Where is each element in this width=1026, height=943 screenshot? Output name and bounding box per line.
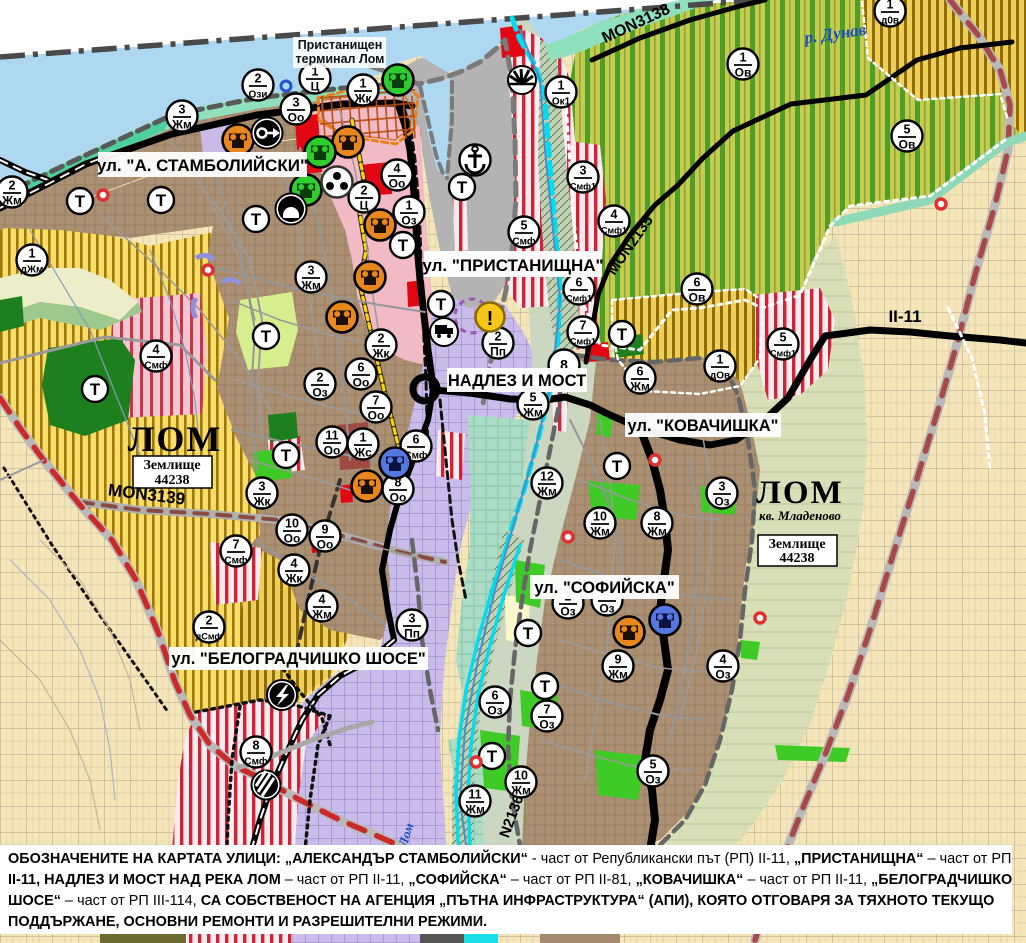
svg-text:Оо: Оо (288, 111, 305, 125)
svg-text:9: 9 (615, 653, 622, 667)
svg-text:Т: Т (617, 325, 628, 344)
svg-text:Жк: Жк (285, 572, 304, 586)
svg-text:Жм: Жм (629, 380, 650, 394)
svg-text:4: 4 (720, 653, 727, 667)
svg-text:7: 7 (233, 538, 240, 552)
svg-text:д0в: д0в (881, 16, 899, 27)
svg-text:Т: Т (281, 446, 292, 465)
svg-text:Жм: Жм (607, 668, 628, 682)
svg-text:1: 1 (887, 0, 894, 12)
svg-text:Оз: Оз (539, 718, 554, 732)
svg-text:Жс: Жс (353, 446, 372, 460)
svg-text:7: 7 (544, 703, 551, 717)
svg-text:Оо: Оо (353, 376, 370, 390)
svg-text:ЛОМ: ЛОМ (128, 419, 223, 459)
svg-text:Оз: Оз (715, 668, 730, 682)
svg-text:1: 1 (360, 431, 367, 445)
svg-text:5: 5 (904, 123, 911, 137)
svg-text:Т: Т (540, 677, 551, 696)
svg-text:Жм: Жм (589, 525, 610, 539)
svg-text:10: 10 (285, 517, 299, 531)
svg-text:Смф: Смф (224, 555, 247, 567)
svg-text:ул. "КОВАЧИШКА": ул. "КОВАЧИШКА" (628, 417, 779, 435)
svg-text:12: 12 (540, 470, 554, 484)
svg-text:Оз: Оз (645, 773, 660, 787)
svg-text:44238: 44238 (780, 551, 815, 566)
svg-text:3: 3 (409, 612, 416, 626)
svg-text:7: 7 (580, 319, 587, 333)
svg-text:дОв: дОв (710, 371, 730, 382)
svg-text:2: 2 (378, 332, 385, 346)
svg-text:Оо: Оо (324, 444, 341, 458)
svg-text:кв. Младеново: кв. Младеново (759, 508, 841, 523)
svg-text:Ов: Ов (689, 291, 706, 305)
svg-text:Жм: Жм (464, 803, 485, 817)
svg-text:4: 4 (611, 208, 618, 222)
svg-text:Т: Т (436, 295, 447, 314)
svg-text:Оз: Оз (599, 602, 614, 616)
svg-text:Смф: Смф (244, 756, 267, 768)
svg-text:4: 4 (319, 593, 326, 607)
svg-text:7: 7 (373, 394, 380, 408)
svg-text:Землище: Землище (768, 537, 825, 552)
svg-text:9: 9 (322, 523, 329, 537)
svg-text:Смф1: Смф1 (566, 294, 592, 304)
svg-text:2: 2 (361, 184, 368, 198)
svg-text:!: ! (487, 308, 494, 330)
svg-text:10: 10 (514, 769, 528, 783)
svg-text:Т: Т (75, 192, 86, 211)
svg-text:Оз: Оз (560, 605, 575, 619)
svg-text:Оз: Оз (487, 704, 502, 718)
svg-text:ЛОМ: ЛОМ (756, 475, 843, 511)
svg-text:Смф: Смф (144, 360, 167, 372)
svg-text:Т: Т (90, 380, 101, 399)
svg-text:8: 8 (654, 510, 661, 524)
svg-text:Оо: Оо (368, 409, 385, 423)
svg-text:Т: Т (457, 178, 468, 197)
svg-text:ул. "СОФИЙСКА": ул. "СОФИЙСКА" (534, 578, 674, 597)
svg-text:2: 2 (9, 179, 16, 193)
svg-text:10: 10 (593, 510, 607, 524)
svg-text:Жм: Жм (300, 279, 321, 293)
svg-text:8: 8 (253, 739, 260, 753)
svg-text:ул. "БЕЛОГРАДЧИШКО ШОСЕ": ул. "БЕЛОГРАДЧИШКО ШОСЕ" (171, 650, 425, 668)
svg-text:Жм: Жм (646, 525, 667, 539)
svg-text:4: 4 (153, 343, 160, 357)
svg-text:Жм: Жм (1, 194, 22, 208)
svg-text:Т: Т (612, 457, 623, 476)
svg-text:Т: Т (398, 236, 409, 255)
svg-text:Жм: Жм (311, 608, 332, 622)
svg-text:3: 3 (308, 264, 315, 278)
svg-text:Смф1: Смф1 (770, 349, 796, 359)
svg-text:Смф1: Смф1 (570, 182, 596, 192)
svg-text:Т: Т (156, 191, 167, 210)
svg-text:Смф: Смф (512, 236, 535, 248)
svg-text:дСмф: дСмф (196, 632, 223, 642)
svg-text:Т: Т (487, 747, 498, 766)
svg-text:Оз: Оз (401, 214, 416, 228)
svg-text:Оо: Оо (389, 177, 406, 191)
svg-text:Жм: Жм (522, 406, 543, 420)
svg-text:Оз: Оз (312, 386, 327, 400)
svg-text:ул. "А. СТАМБОЛИЙСКИ": ул. "А. СТАМБОЛИЙСКИ" (97, 156, 308, 175)
svg-text:11: 11 (468, 788, 481, 802)
svg-text:5: 5 (780, 331, 787, 345)
svg-text:Оо: Оо (317, 538, 334, 552)
svg-text:Ов: Ов (735, 66, 752, 80)
svg-text:НАДЛЕЗ И МОСТ: НАДЛЕЗ И МОСТ (448, 372, 586, 390)
svg-text:1: 1 (717, 353, 724, 367)
svg-text:Т: Т (261, 327, 272, 346)
svg-text:Ц: Ц (360, 199, 369, 213)
svg-text:6: 6 (637, 365, 644, 379)
svg-text:5: 5 (530, 391, 537, 405)
svg-text:1: 1 (740, 51, 747, 65)
svg-text:Ок1: Ок1 (552, 97, 571, 108)
svg-text:Пп: Пп (404, 627, 420, 641)
svg-text:5: 5 (521, 219, 528, 233)
svg-text:3: 3 (293, 96, 300, 110)
svg-text:Жк: Жк (372, 347, 391, 361)
svg-text:Смф1: Смф1 (570, 337, 596, 347)
svg-text:Ози: Ози (249, 90, 268, 101)
svg-text:Жм: Жм (536, 485, 557, 499)
svg-text:1: 1 (360, 77, 367, 91)
svg-text:Т: Т (251, 210, 262, 229)
svg-text:ул. "ПРИСТАНИЩНА": ул. "ПРИСТАНИЩНА" (422, 256, 603, 275)
svg-text:6: 6 (358, 361, 365, 375)
svg-text:2: 2 (317, 371, 324, 385)
svg-text:II-11: II-11 (888, 307, 921, 326)
svg-text:Т: Т (523, 624, 534, 643)
svg-text:Оо: Оо (284, 532, 301, 546)
svg-text:2: 2 (206, 614, 213, 628)
svg-text:Оз: Оз (714, 495, 729, 509)
svg-text:3: 3 (719, 480, 726, 494)
svg-text:Землище: Землище (143, 458, 200, 473)
svg-text:Ц: Ц (311, 80, 320, 94)
svg-text:5: 5 (650, 758, 657, 772)
svg-text:дЖм: дЖм (21, 265, 44, 276)
svg-text:1: 1 (558, 79, 565, 93)
svg-text:Ов: Ов (899, 138, 916, 152)
svg-text:6: 6 (492, 689, 499, 703)
svg-text:Жк: Жк (354, 92, 373, 106)
svg-text:3: 3 (259, 480, 266, 494)
svg-text:6: 6 (576, 276, 583, 290)
svg-text:Пп: Пп (490, 345, 506, 359)
svg-text:4: 4 (394, 162, 401, 176)
svg-text:Жм: Жм (171, 118, 192, 132)
svg-text:6: 6 (413, 433, 420, 447)
svg-text:11: 11 (325, 429, 338, 443)
svg-text:1: 1 (406, 199, 413, 213)
svg-text:3: 3 (580, 164, 587, 178)
svg-text:4: 4 (291, 557, 298, 571)
svg-text:терминал Лом: терминал Лом (296, 52, 385, 66)
svg-text:Оо: Оо (390, 491, 407, 505)
svg-text:6: 6 (694, 276, 701, 290)
svg-text:2: 2 (255, 72, 262, 86)
svg-text:3: 3 (179, 103, 186, 117)
svg-text:1: 1 (29, 247, 36, 261)
svg-text:Пристанищен: Пристанищен (298, 38, 383, 52)
svg-text:Смф1: Смф1 (601, 226, 627, 236)
svg-text:Жк: Жк (253, 495, 272, 509)
